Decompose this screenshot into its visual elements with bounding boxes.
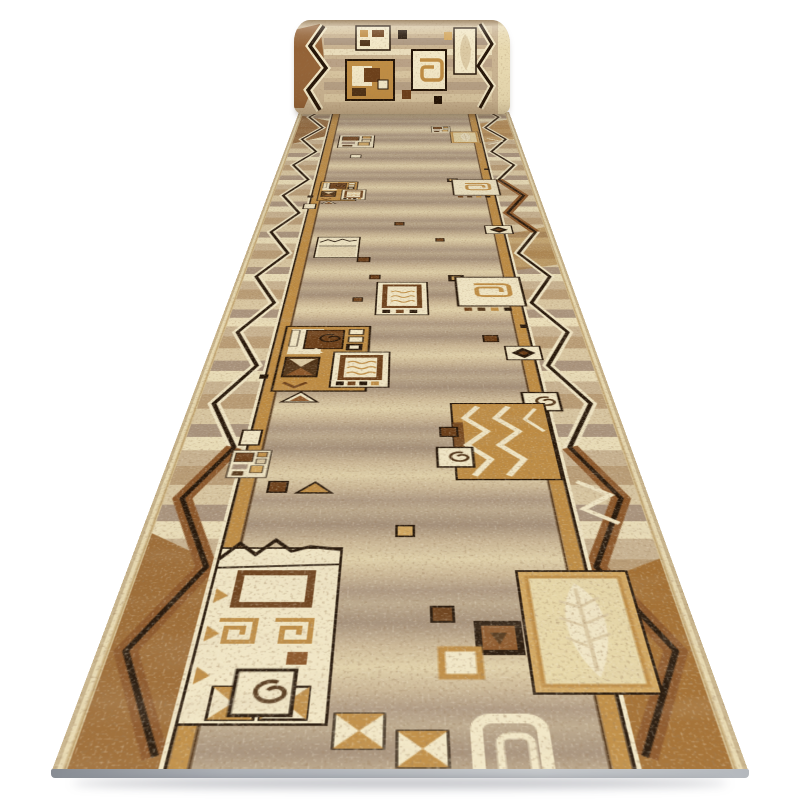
depth-shading xyxy=(52,112,748,770)
rug-bottom-edge-profile xyxy=(51,769,749,778)
roll-cylinder-shading xyxy=(294,20,510,114)
runner-rug xyxy=(0,0,800,800)
product-photo-canvas xyxy=(0,0,800,800)
rug-drop-shadow xyxy=(72,778,728,788)
rug-pattern xyxy=(52,112,748,770)
rug-rolled-end xyxy=(294,20,510,114)
rug-flat-body xyxy=(52,112,748,770)
rug-roll-pattern xyxy=(294,20,510,114)
